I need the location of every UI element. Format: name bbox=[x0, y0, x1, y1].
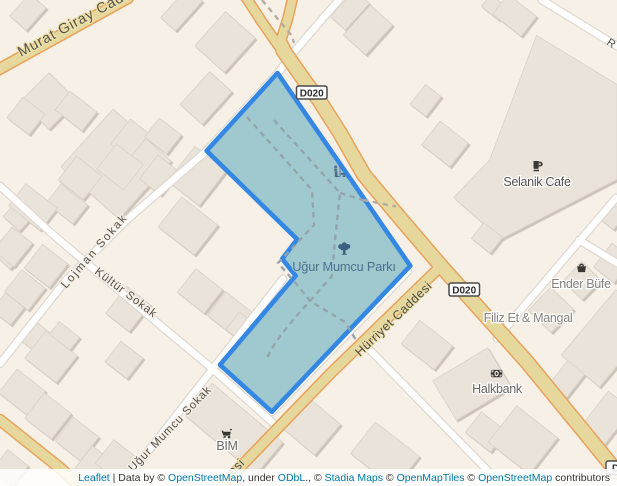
svg-text:Selanik Cafe: Selanik Cafe bbox=[503, 175, 571, 189]
svg-text:BİM: BİM bbox=[216, 439, 237, 453]
svg-text:D020: D020 bbox=[300, 88, 324, 99]
svg-text:Halkbank: Halkbank bbox=[472, 382, 523, 396]
svg-text:Filiz Et & Mangal: Filiz Et & Mangal bbox=[484, 311, 573, 325]
svg-text:Leaflet | Data by © OpenStreet: Leaflet | Data by © OpenStreetMap, under… bbox=[78, 472, 610, 484]
svg-text:Uğur Mumcu Parkı: Uğur Mumcu Parkı bbox=[292, 259, 395, 274]
svg-text:Ender Büfe: Ender Büfe bbox=[551, 277, 611, 291]
svg-text:D020: D020 bbox=[452, 285, 476, 296]
